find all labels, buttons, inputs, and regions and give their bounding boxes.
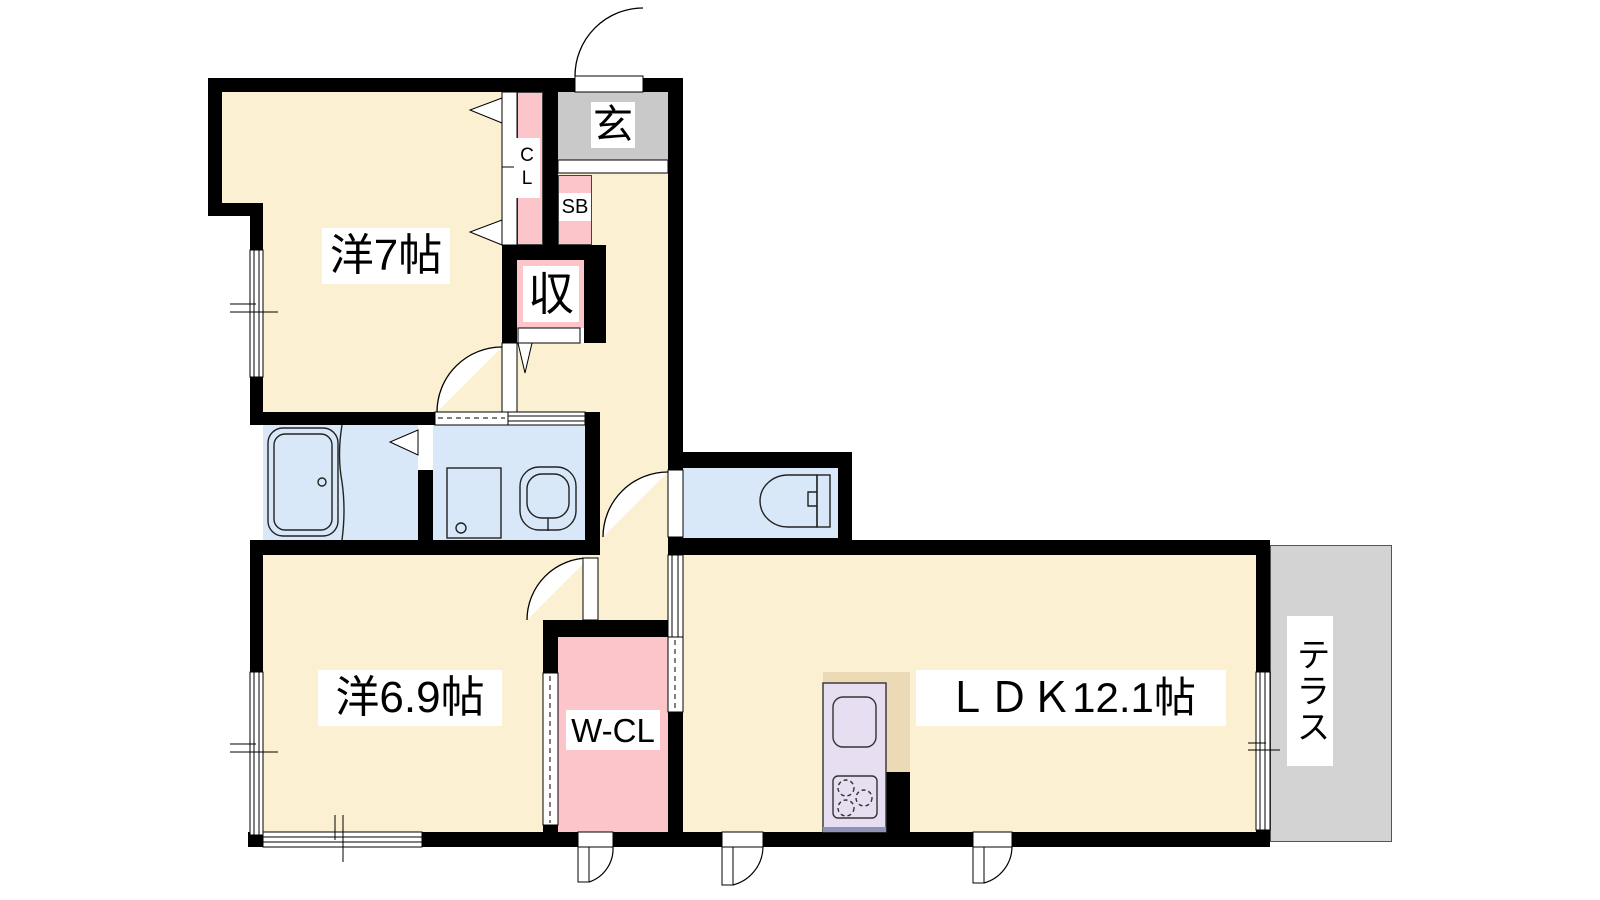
- exterior-door: [973, 832, 1012, 883]
- washer-pan-icon: [447, 468, 501, 538]
- folding-door: [435, 412, 508, 425]
- room-label-closet: CL: [514, 138, 540, 198]
- room-label-western7: 洋7帖: [322, 228, 450, 284]
- room-label-terrace: テラス: [1287, 616, 1333, 766]
- room-label-ldk: ＬＤＫ12.1帖: [916, 670, 1226, 726]
- walkin-closet-door-left: [543, 673, 558, 825]
- hallway-ldk-opening: [668, 555, 683, 637]
- room-label-western69: 洋6.9帖: [318, 670, 502, 726]
- kitchen-counter: [823, 683, 886, 832]
- washroom-opening: [508, 412, 585, 425]
- bathtub-icon: [268, 425, 344, 540]
- toilet-door: [603, 470, 683, 537]
- entrance-step: [558, 160, 668, 173]
- exterior-door: [578, 832, 613, 882]
- sink-icon: [520, 467, 576, 531]
- storage-door: [518, 328, 580, 373]
- western69-door: [527, 558, 598, 620]
- floor-plan: 洋7帖 玄 CL SB 収 洋6.9帖 W-CL ＬＤＫ12.1帖 テラス: [0, 0, 1600, 900]
- window: [263, 815, 422, 862]
- room-label-entrance: 玄: [591, 102, 635, 148]
- room-label-walkin-closet: W-CL: [566, 710, 660, 750]
- entrance-door: [575, 8, 643, 92]
- window: [1248, 672, 1280, 830]
- western7-door: [437, 343, 517, 412]
- window: [230, 250, 278, 377]
- toilet-icon: [760, 475, 830, 527]
- closet-cl-doors: [470, 92, 517, 245]
- bath-door-arrow: [390, 430, 418, 455]
- room-label-shoebox: SB: [559, 193, 591, 221]
- walkin-closet-door-right: [668, 637, 683, 712]
- exterior-door: [722, 832, 763, 885]
- room-label-storage: 収: [523, 266, 579, 322]
- window: [230, 672, 278, 835]
